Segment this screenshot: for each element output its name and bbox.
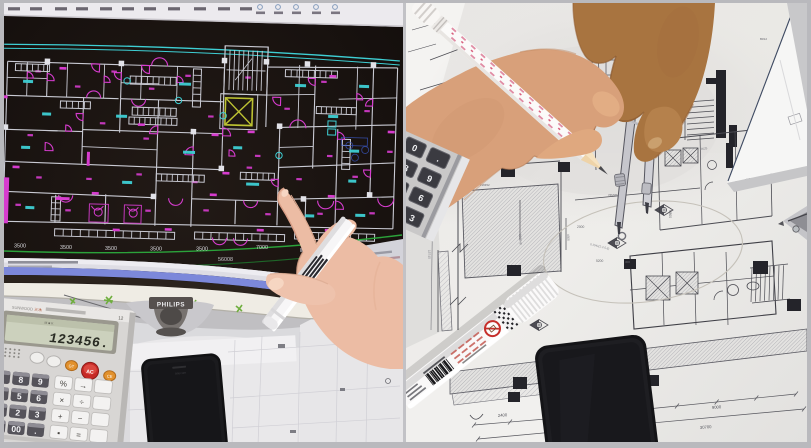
svg-text:AC: AC [86, 369, 94, 376]
svg-text:15745: 15745 [427, 250, 431, 259]
svg-text:3500: 3500 [60, 245, 72, 251]
svg-text:B2324B: B2324B [518, 234, 523, 245]
svg-text:7#M452: 7#M452 [608, 193, 619, 197]
svg-text:300: 300 [625, 260, 630, 264]
svg-text:00: 00 [11, 424, 22, 435]
svg-text:→: → [79, 381, 88, 391]
svg-text:56008: 56008 [218, 257, 233, 263]
svg-text:4500: 4500 [566, 234, 570, 241]
svg-text:M625: M625 [700, 146, 708, 151]
svg-text:3500: 3500 [150, 247, 162, 253]
svg-text:5200: 5200 [596, 259, 604, 263]
svg-text:B#12: B#12 [760, 37, 767, 41]
svg-text:12: 12 [118, 315, 124, 321]
svg-text:2000: 2000 [577, 225, 585, 229]
svg-text:3500: 3500 [14, 244, 26, 250]
svg-text:%: % [59, 379, 67, 389]
svg-text:2400: 2400 [498, 412, 508, 418]
svg-text:30700: 30700 [700, 424, 713, 430]
svg-text:3500: 3500 [196, 247, 208, 253]
svg-text:CE: CE [107, 374, 113, 380]
svg-text:3500: 3500 [105, 246, 117, 252]
svg-text:GT: GT [68, 363, 75, 369]
svg-text:PHILIPS: PHILIPS [157, 302, 185, 309]
svg-text:9000: 9000 [712, 404, 722, 410]
svg-text:7000: 7000 [256, 245, 268, 251]
